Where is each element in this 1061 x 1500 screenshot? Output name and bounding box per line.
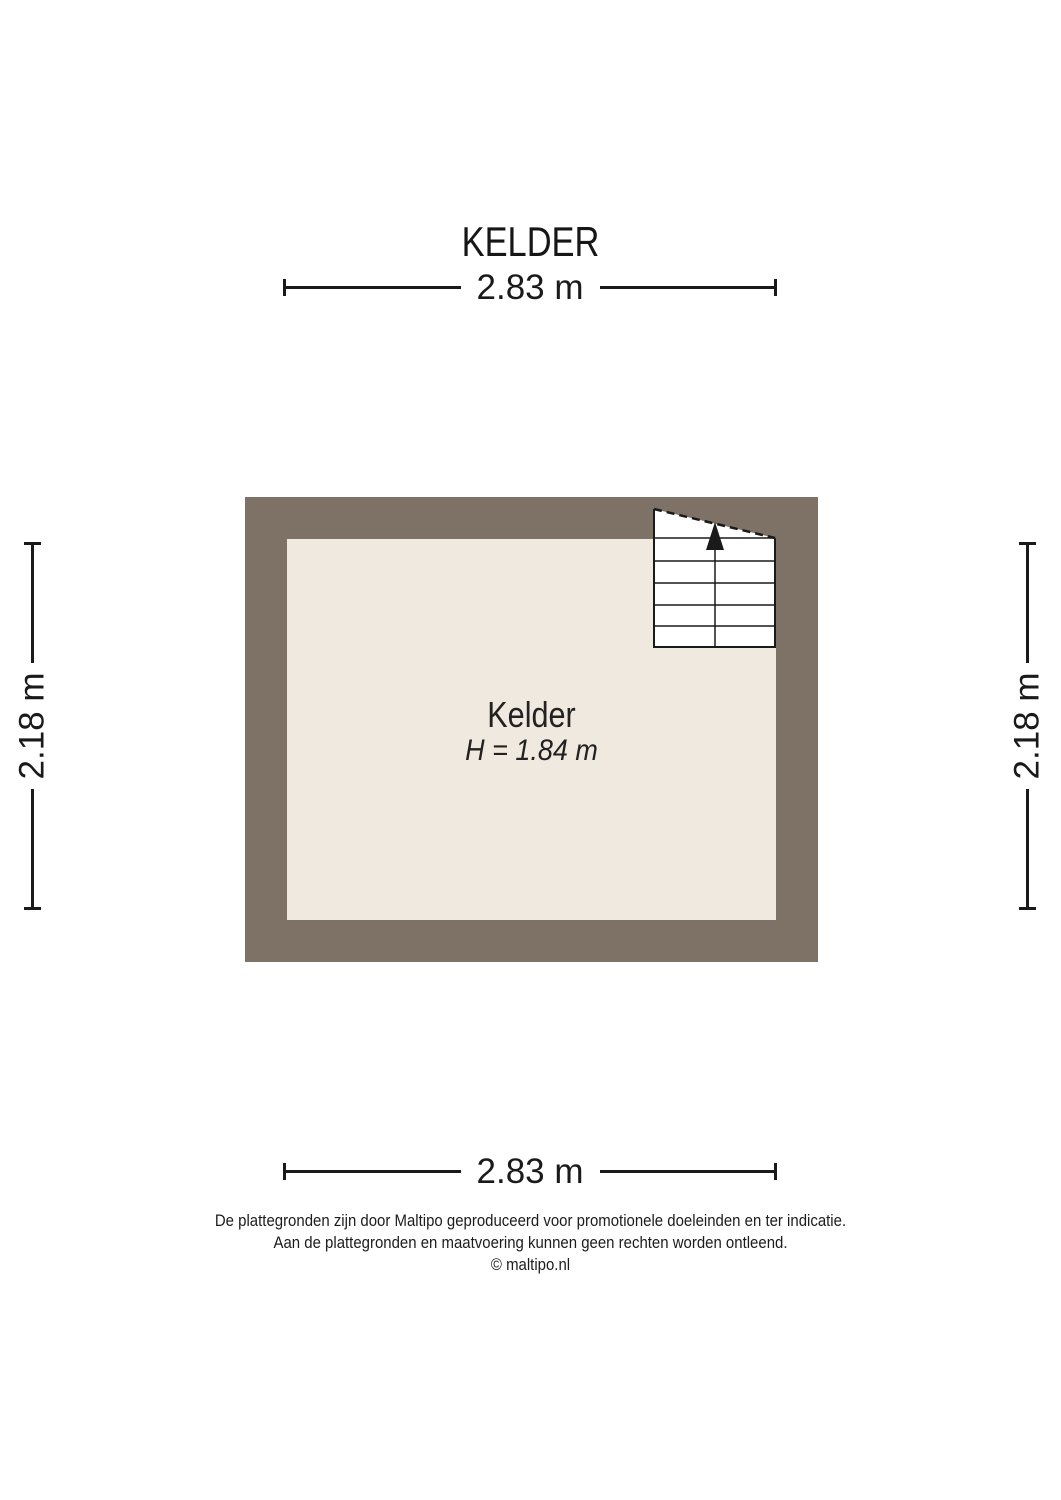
dimension-tick — [24, 907, 41, 910]
dimension-label-left: 2.18 m — [15, 673, 50, 780]
dimension-line — [286, 1170, 461, 1173]
dimension-line — [31, 789, 34, 910]
floorplan-page: KELDER 2.83 m 2.18 m 2.18 m — [0, 0, 1061, 1500]
dimension-line — [600, 286, 775, 289]
disclaimer-line-2: Aan de plattegronden en maatvoering kunn… — [64, 1232, 998, 1254]
room-height-label: H = 1.84 m — [274, 734, 790, 767]
copyright-label: © maltipo.nl — [64, 1254, 998, 1276]
floorplan-wall: Kelder H = 1.84 m — [245, 497, 818, 962]
dimension-line — [286, 286, 461, 289]
dimension-bottom: 2.83 m — [283, 1154, 777, 1188]
dimension-label-right: 2.18 m — [1010, 673, 1045, 780]
dimension-tick — [1019, 907, 1036, 910]
dimension-line — [1026, 789, 1029, 910]
disclaimer-line-1: De plattegronden zijn door Maltipo gepro… — [64, 1210, 998, 1232]
dimension-line — [31, 542, 34, 663]
footer-disclaimer: De plattegronden zijn door Maltipo gepro… — [0, 1210, 1061, 1276]
dimension-left: 2.18 m — [15, 542, 49, 910]
dimension-tick — [774, 279, 777, 296]
dimension-tick — [774, 1163, 777, 1180]
dimension-label-top: 2.83 m — [477, 270, 584, 305]
dimension-label-bottom: 2.83 m — [477, 1154, 584, 1189]
dimension-right: 2.18 m — [1010, 542, 1044, 910]
stairs-icon — [653, 508, 776, 648]
room-name-label: Kelder — [288, 695, 775, 735]
dimension-line — [600, 1170, 775, 1173]
dimension-top: 2.83 m — [283, 270, 777, 304]
dimension-line — [1026, 542, 1029, 663]
page-title: KELDER — [95, 219, 965, 265]
